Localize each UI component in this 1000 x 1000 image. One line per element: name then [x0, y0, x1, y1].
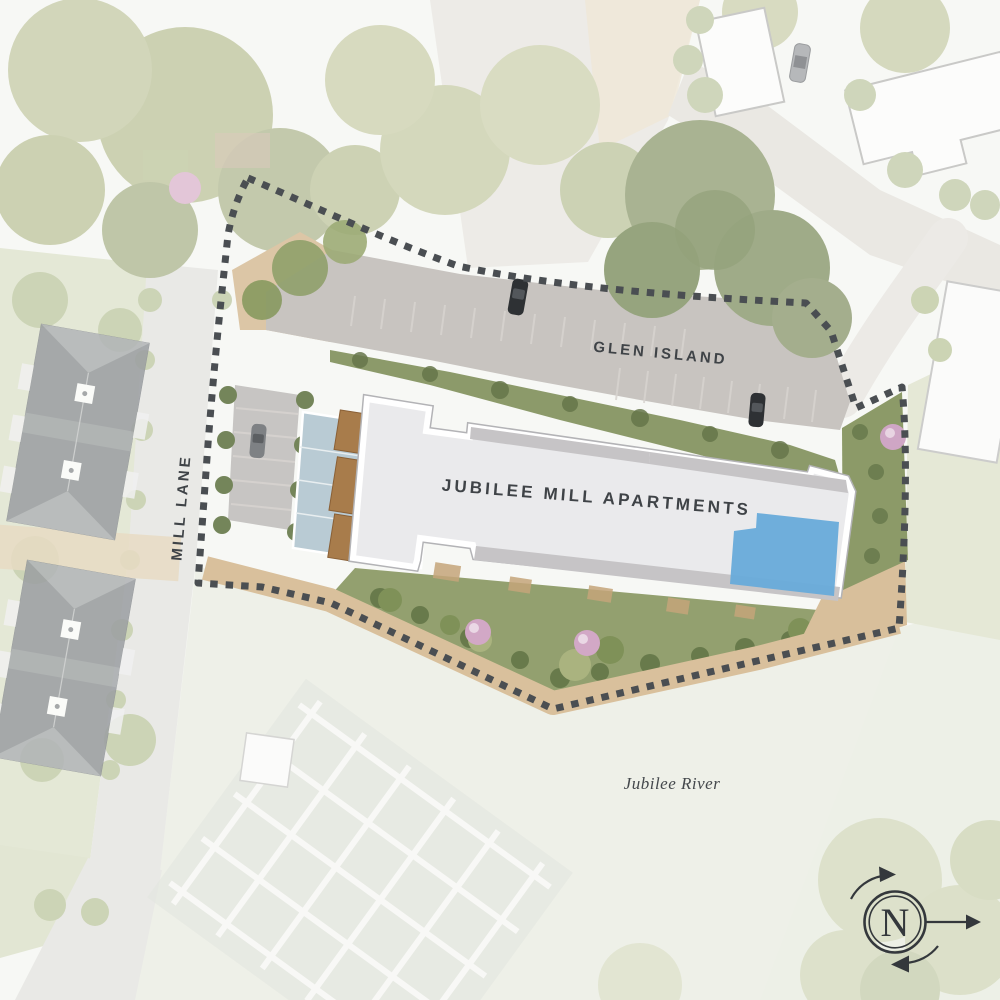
- riverside-pavilion: [240, 733, 294, 787]
- river-label: Jubilee River: [624, 774, 721, 793]
- parked-car-faded: [789, 43, 811, 83]
- site-plan-canvas: JUBILEE MILL APARTMENTS: [0, 0, 1000, 1000]
- compass-north-label: N: [881, 900, 910, 945]
- parked-car: [748, 392, 766, 427]
- flowering-tree: [169, 172, 201, 204]
- parked-car: [249, 423, 267, 458]
- site-plan: JUBILEE MILL APARTMENTS: [0, 0, 1000, 1000]
